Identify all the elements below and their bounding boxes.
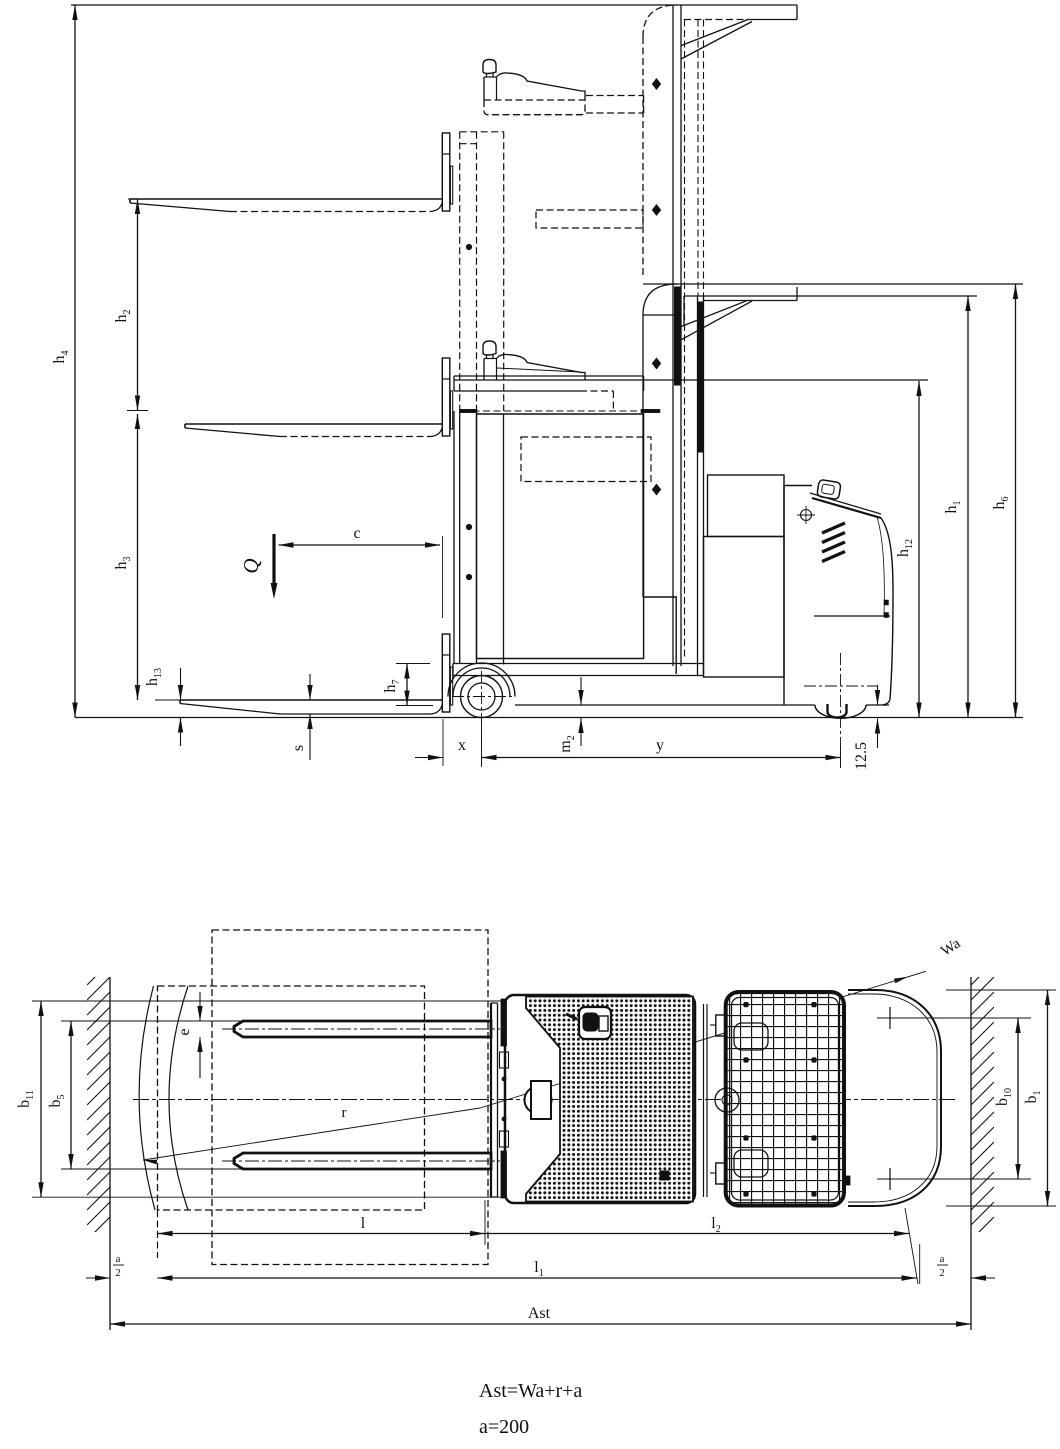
svg-text:l: l (361, 1215, 366, 1232)
svg-text:a: a (940, 1253, 945, 1265)
svg-text:e: e (176, 1028, 193, 1035)
svg-text:a=200: a=200 (479, 1416, 529, 1438)
svg-text:2: 2 (115, 1267, 121, 1279)
svg-text:2: 2 (939, 1267, 945, 1279)
svg-text:c: c (353, 525, 360, 542)
svg-text:r: r (342, 1105, 347, 1121)
svg-text:Q: Q (239, 558, 263, 573)
svg-text:x: x (458, 737, 466, 754)
svg-text:s: s (290, 745, 307, 751)
svg-text:12.5: 12.5 (853, 742, 870, 770)
svg-text:Ast: Ast (528, 1305, 551, 1322)
svg-text:a: a (116, 1253, 121, 1265)
svg-text:Ast=Wa+r+a: Ast=Wa+r+a (479, 1380, 582, 1402)
svg-text:y: y (656, 737, 664, 754)
